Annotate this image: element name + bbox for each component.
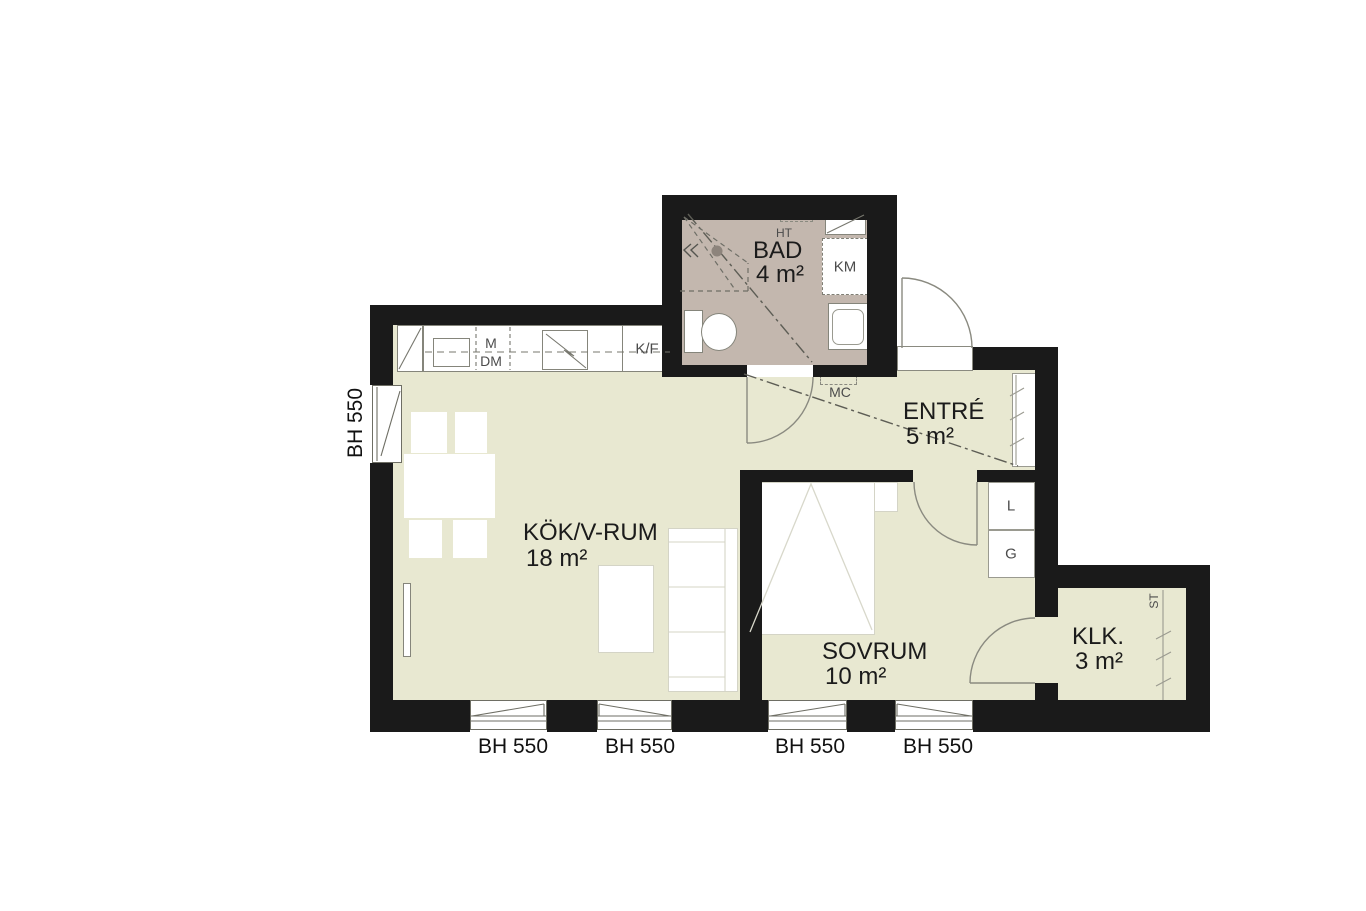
wall-left	[370, 463, 393, 732]
bathroom-door-threshold	[747, 365, 813, 377]
wall-bathroom-left	[662, 195, 682, 377]
wall-bathroom-bottom	[662, 365, 747, 377]
wall-right-stub	[1035, 683, 1058, 702]
wall-bottom	[370, 700, 470, 732]
wall-entry-bedroom	[977, 470, 1035, 482]
window-4-label: BH 550	[903, 735, 973, 759]
room-area-sovrum: 10 m²	[825, 664, 886, 689]
wall-bottom	[547, 700, 597, 732]
room-area-klk: 3 m²	[1075, 649, 1123, 674]
wall-entry-bedroom	[762, 470, 913, 482]
dining-table	[404, 454, 495, 518]
wall-bathroom-right	[867, 195, 897, 377]
wall-closet-right	[1186, 565, 1210, 732]
bedroom-door-opening	[913, 470, 977, 482]
dining-chair	[455, 412, 487, 453]
dining-chair	[409, 520, 442, 558]
radiator	[403, 583, 411, 657]
kitchen-sink	[542, 330, 588, 370]
room-label-entre: ENTRÉ	[903, 399, 984, 424]
wall-bottom	[847, 700, 895, 732]
room-label-bad: BAD	[753, 238, 802, 263]
tall-cabinet	[397, 325, 423, 372]
window-left	[372, 385, 402, 463]
floor-plan: BAD 4 m² KÖK/V-RUM 18 m² ENTRÉ 5 m² SOVR…	[0, 0, 1366, 911]
wall-kitchen-top	[370, 305, 682, 325]
label-washing-machine: KM	[834, 259, 857, 276]
sofa	[668, 528, 738, 692]
label-dishwasher: DM	[480, 353, 502, 369]
room-label-kok: KÖK/V-RUM	[523, 520, 658, 545]
bed	[748, 482, 875, 635]
label-meter-cabinet: MC	[829, 384, 851, 400]
room-label-sovrum: SOVRUM	[822, 639, 927, 664]
window-2-label: BH 550	[605, 735, 675, 759]
label-towel-dryer: HT	[776, 226, 792, 240]
window-3	[768, 700, 847, 730]
wall-bottom	[973, 700, 1210, 732]
label-microwave: M	[485, 335, 497, 351]
window-left-label: BH 550	[344, 388, 368, 458]
nightstand	[874, 482, 898, 512]
label-wardrobe: G	[1005, 546, 1017, 563]
label-linen-closet: L	[1007, 498, 1015, 515]
wall-bathroom-bottom	[813, 365, 888, 377]
room-area-kok: 18 m²	[526, 546, 587, 571]
wall-right	[1035, 347, 1058, 617]
dining-chair	[411, 412, 447, 453]
toilet-bowl	[701, 313, 737, 351]
window-2	[597, 700, 672, 730]
dining-chair	[453, 520, 487, 558]
room-area-entre: 5 m²	[906, 424, 954, 449]
window-3-label: BH 550	[775, 735, 845, 759]
wall-bottom	[672, 700, 768, 732]
room-label-klk: KLK.	[1072, 624, 1124, 649]
entrance-door-threshold	[897, 346, 973, 371]
floor-entry	[740, 370, 1035, 470]
bathroom-sink-basin	[832, 309, 864, 345]
entrance-door-arc	[902, 278, 972, 348]
wall-left	[370, 305, 393, 385]
oven	[433, 338, 470, 367]
label-cleaning-cabinet: ST	[1147, 593, 1161, 608]
hat-rack	[1012, 373, 1037, 467]
room-area-bad: 4 m²	[756, 262, 804, 287]
window-1	[470, 700, 547, 730]
window-1-label: BH 550	[478, 735, 548, 759]
wall-kitchen-bedroom	[740, 470, 762, 700]
closet-door-opening	[1035, 617, 1058, 683]
label-fridge-freezer: K/F	[635, 341, 658, 358]
window-4	[895, 700, 973, 730]
wall-bathroom-top	[662, 195, 888, 220]
coffee-table	[598, 565, 654, 653]
